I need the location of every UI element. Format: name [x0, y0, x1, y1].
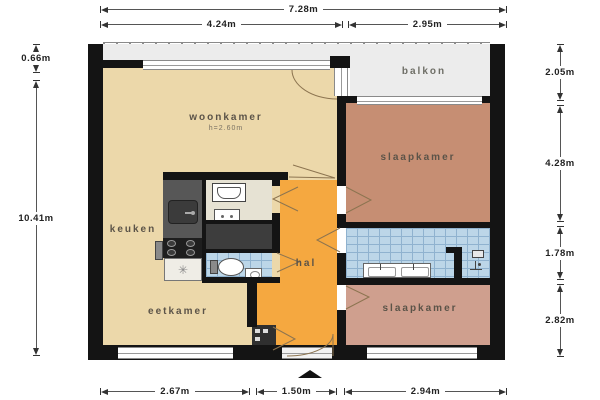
label-balkon: balkon: [402, 66, 446, 77]
floorplan-canvas: 7.28m 4.24m 2.95m 0.66m 10.41m 2.05m 4.2…: [0, 0, 600, 400]
north-arrow-icon: [298, 370, 322, 378]
label-keuken: keuken: [110, 224, 156, 235]
label-hal: hal: [296, 258, 316, 269]
label-woonkamer: woonkamer: [189, 112, 263, 123]
door-wedge-slaapkamer1: [346, 187, 371, 213]
door-arc-entrance: [287, 334, 333, 356]
door-swing-overlay: [0, 0, 600, 400]
door-wedge-badkamer: [317, 228, 340, 252]
door-arc-balkon: [292, 70, 337, 99]
door-wedge-service: [273, 187, 298, 211]
label-slaapkamer-2: slaapkamer: [382, 303, 457, 314]
label-slaapkamer-1: slaapkamer: [380, 152, 455, 163]
label-eetkamer: eetkamer: [148, 306, 208, 317]
label-woonkamer-height: h=2.60m: [209, 125, 243, 132]
door-wedge-eetkamer-hal: [273, 327, 295, 350]
door-wedge-woonkamer-hal: [289, 165, 335, 178]
door-wedge-slaapkamer2: [346, 286, 369, 309]
